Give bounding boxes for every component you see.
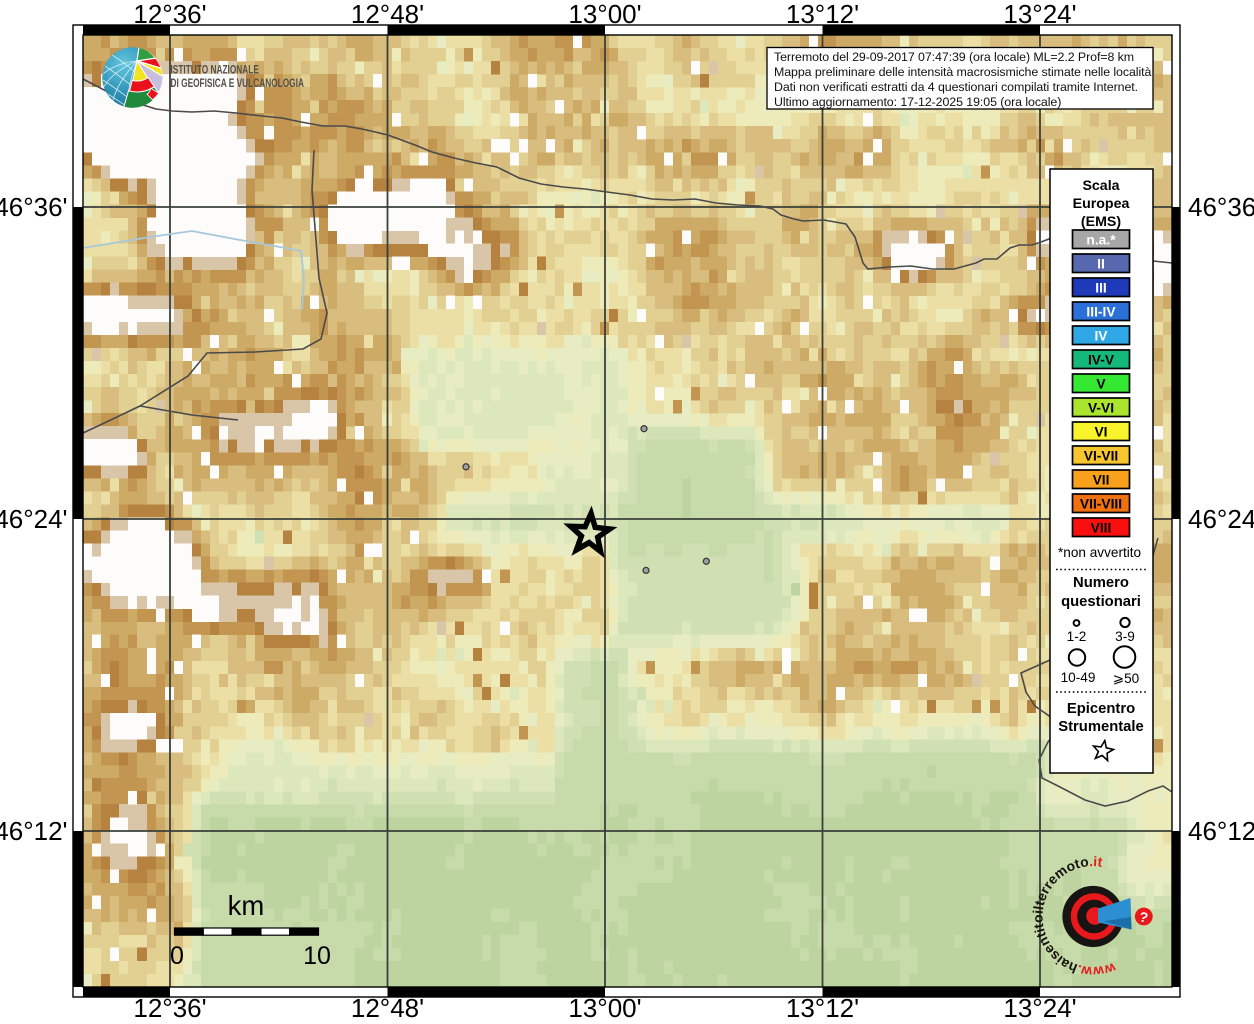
svg-text:46°24': 46°24' [1188,504,1254,534]
svg-text:13°12': 13°12' [786,993,859,1023]
svg-text:Europea: Europea [1073,196,1130,212]
svg-text:3-9: 3-9 [1115,629,1135,644]
svg-text:12°48': 12°48' [351,0,424,29]
svg-text:0: 0 [170,942,184,970]
svg-text:VIII: VIII [1091,521,1112,536]
svg-text:II: II [1097,257,1105,272]
svg-text:VI: VI [1094,425,1107,440]
svg-text:DI GEOFISICA E VULCANOLOGIA: DI GEOFISICA E VULCANOLOGIA [171,78,305,91]
svg-text:*non avvertito: *non avvertito [1058,545,1141,560]
svg-text:13°12': 13°12' [786,0,859,29]
svg-text:13°24': 13°24' [1003,993,1076,1023]
svg-text:Terremoto del 29-09-2017 07:47: Terremoto del 29-09-2017 07:47:39 (ora l… [774,50,1134,64]
svg-text:V: V [1096,377,1106,392]
svg-text:13°00': 13°00' [568,993,641,1023]
svg-text:ISTITUTO NAZIONALE: ISTITUTO NAZIONALE [171,64,260,77]
svg-text:questionari: questionari [1061,594,1141,610]
svg-text:IV: IV [1094,329,1108,344]
svg-text:13°00': 13°00' [568,0,641,29]
svg-text:Epicentro: Epicentro [1067,701,1135,717]
svg-text:V-VI: V-VI [1088,401,1114,416]
svg-text:Scala: Scala [1082,178,1119,194]
svg-text:Mappa preliminare delle intens: Mappa preliminare delle intensità macros… [774,65,1151,79]
svg-text:(EMS): (EMS) [1081,214,1121,230]
svg-text:46°36': 46°36' [0,192,68,222]
svg-text:Ultimo aggiornamento: 17-12-20: Ultimo aggiornamento: 17-12-2025 19:05 (… [774,95,1061,109]
svg-text:12°36': 12°36' [133,0,206,29]
svg-text:13°24': 13°24' [1003,0,1076,29]
svg-text:⩾50: ⩾50 [1113,671,1140,686]
svg-text:10: 10 [303,942,331,970]
svg-text:1-2: 1-2 [1067,629,1087,644]
svg-text:km: km [228,890,265,921]
svg-text:VI-VII: VI-VII [1084,449,1119,464]
svg-text:n.a.*: n.a.* [1086,233,1116,248]
svg-text:46°12': 46°12' [0,816,68,846]
svg-text:III-IV: III-IV [1086,305,1116,320]
svg-text:IV-V: IV-V [1088,353,1115,368]
svg-text:Strumentale: Strumentale [1058,719,1144,735]
svg-text:10-49: 10-49 [1061,670,1096,685]
svg-text:46°24': 46°24' [0,504,68,534]
svg-text:III: III [1095,281,1107,296]
svg-text:46°12': 46°12' [1188,816,1254,846]
svg-text:Numero: Numero [1073,575,1129,591]
svg-text:VII-VIII: VII-VIII [1080,497,1122,512]
svg-text:12°36': 12°36' [133,993,206,1023]
svg-text:VII: VII [1093,473,1110,488]
svg-text:46°36': 46°36' [1188,192,1254,222]
svg-text:12°48': 12°48' [351,993,424,1023]
svg-text:Dati non verificati estratti d: Dati non verificati estratti da 4 questi… [774,80,1138,94]
